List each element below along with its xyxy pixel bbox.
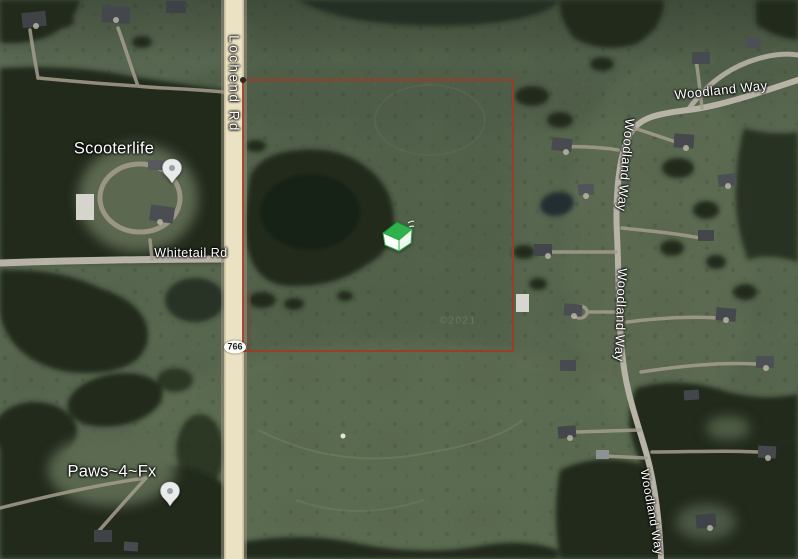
route-shield-number: 766	[227, 343, 242, 352]
satellite-imagery	[0, 0, 798, 559]
green-house-icon	[378, 218, 416, 254]
route-shield-766: 766	[224, 341, 246, 354]
place-pin-icon	[159, 481, 181, 507]
map-canvas[interactable]: Lochend Rd Whitetail Rd Woodland Way Woo…	[0, 0, 798, 559]
place-pin-icon	[161, 158, 183, 184]
